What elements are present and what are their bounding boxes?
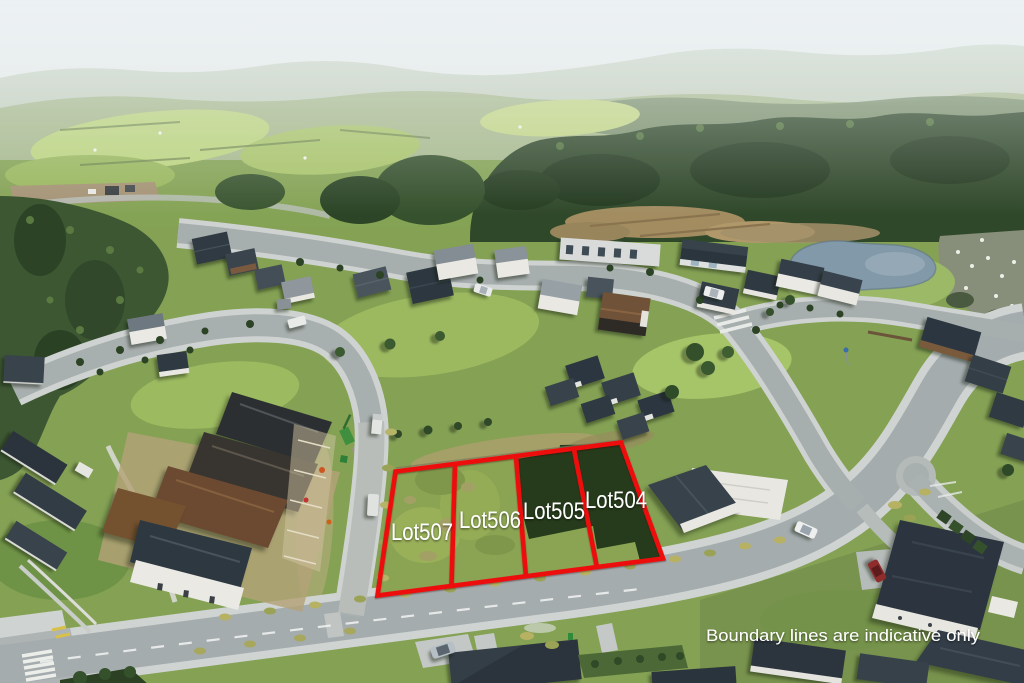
lot-label-504: Lot504 [585,487,647,514]
house [494,246,530,278]
shed [277,298,292,309]
lot-label-505: Lot505 [523,498,585,525]
disclaimer-text: Boundary lines are indicative only [706,627,981,645]
house [157,351,190,377]
street-sign [844,348,849,353]
white-truck [371,414,383,435]
aerial-scene: Lot507 Lot506 Lot505 Lot504 Boundary lin… [0,0,1024,683]
aerial-listing-photo: Lot507 Lot506 Lot505 Lot504 Boundary lin… [0,0,1024,683]
lot-label-506: Lot506 [459,507,521,534]
house [3,355,44,385]
barn-house [598,292,651,336]
white-van [367,494,379,517]
wheelie-bin [568,633,573,640]
lot-label-507: Lot507 [391,519,453,546]
haze [0,0,1024,215]
